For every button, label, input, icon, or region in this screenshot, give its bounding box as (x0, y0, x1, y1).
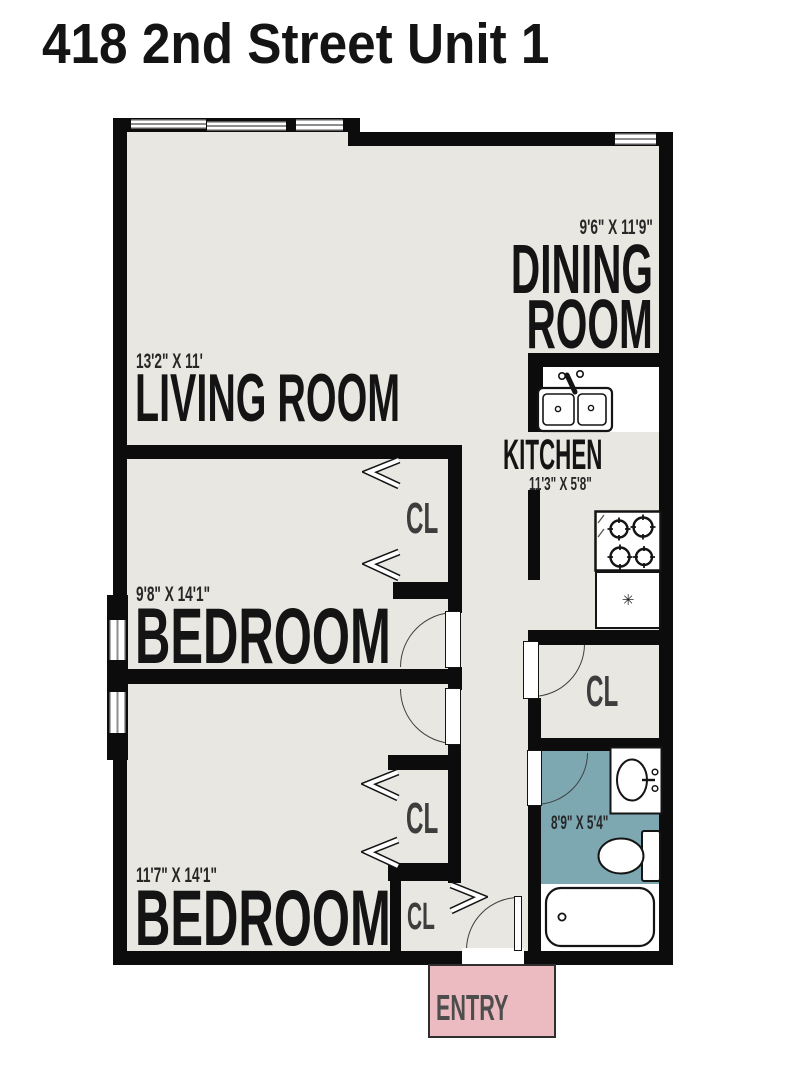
bifold-door-icon (361, 768, 401, 802)
closet-label: CL (406, 797, 465, 841)
window (131, 119, 206, 129)
bedroom1-label: BEDROOM (135, 596, 548, 675)
vanity-sink-icon (609, 746, 663, 816)
window (109, 692, 126, 733)
wall (113, 445, 462, 459)
window (207, 121, 286, 131)
exterior-mask (352, 96, 687, 132)
snowflake-glyph: ✳ (622, 591, 635, 609)
refrigerator-icon: ✳ (595, 571, 661, 629)
entry-label: ENTRY (436, 990, 557, 1026)
door-leaf (445, 688, 461, 745)
closet-label: CL (406, 497, 465, 541)
door-leaf (527, 750, 542, 806)
bifold-door-icon (362, 456, 402, 490)
bathroom-dims: 8'9" X 5'4" (551, 814, 644, 833)
bifold-door-icon (362, 548, 402, 582)
closet-label: CL (586, 670, 645, 714)
wall (113, 118, 127, 965)
kitchen-dims: 11'3" X 5'8" (529, 475, 626, 493)
toilet-icon (594, 827, 664, 885)
bedroom2-label: BEDROOM (135, 878, 548, 957)
window (615, 133, 656, 145)
floor-plan-page: 418 2nd Street Unit 1 (0, 0, 810, 1080)
bathtub-icon (538, 880, 662, 953)
wall (528, 630, 661, 645)
stove-icon (594, 510, 662, 572)
window (296, 119, 343, 131)
bifold-door-icon (361, 836, 401, 870)
floor-plan: ✳ 9'6" X 11'9" DINING ROOM 13'2" X 11' L… (0, 0, 810, 1080)
window (109, 620, 126, 660)
kitchen-divider-wall (528, 490, 540, 580)
living-room-label: LIVING ROOM (135, 364, 592, 432)
dining-room-label: ROOM (435, 289, 653, 359)
kitchen-label: KITCHEN (503, 434, 694, 477)
